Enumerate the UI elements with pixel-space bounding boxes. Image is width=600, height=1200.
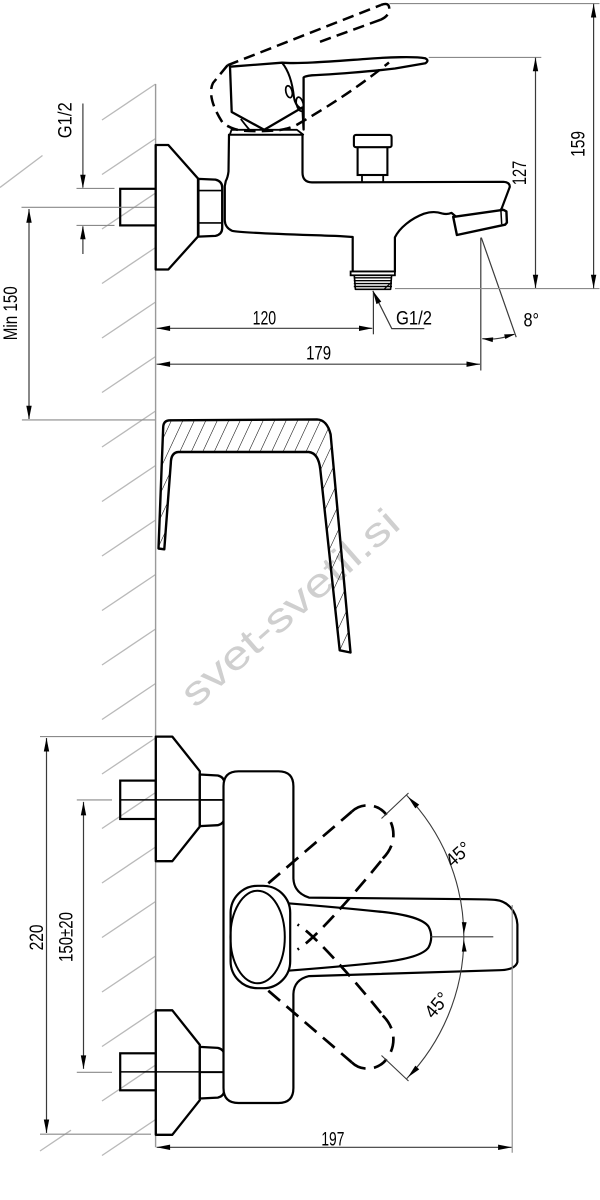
- svg-text:150±20: 150±20: [56, 912, 77, 962]
- svg-text:120: 120: [253, 309, 277, 330]
- svg-text:Min 150: Min 150: [1, 286, 22, 340]
- svg-text:197: 197: [321, 1129, 344, 1150]
- svg-text:220: 220: [27, 924, 48, 950]
- svg-text:127: 127: [510, 161, 531, 186]
- svg-text:G1/2: G1/2: [396, 309, 432, 330]
- svg-text:179: 179: [306, 344, 331, 365]
- svg-text:8°: 8°: [523, 310, 539, 331]
- svg-text:159: 159: [568, 131, 589, 157]
- svg-text:G1/2: G1/2: [55, 102, 76, 138]
